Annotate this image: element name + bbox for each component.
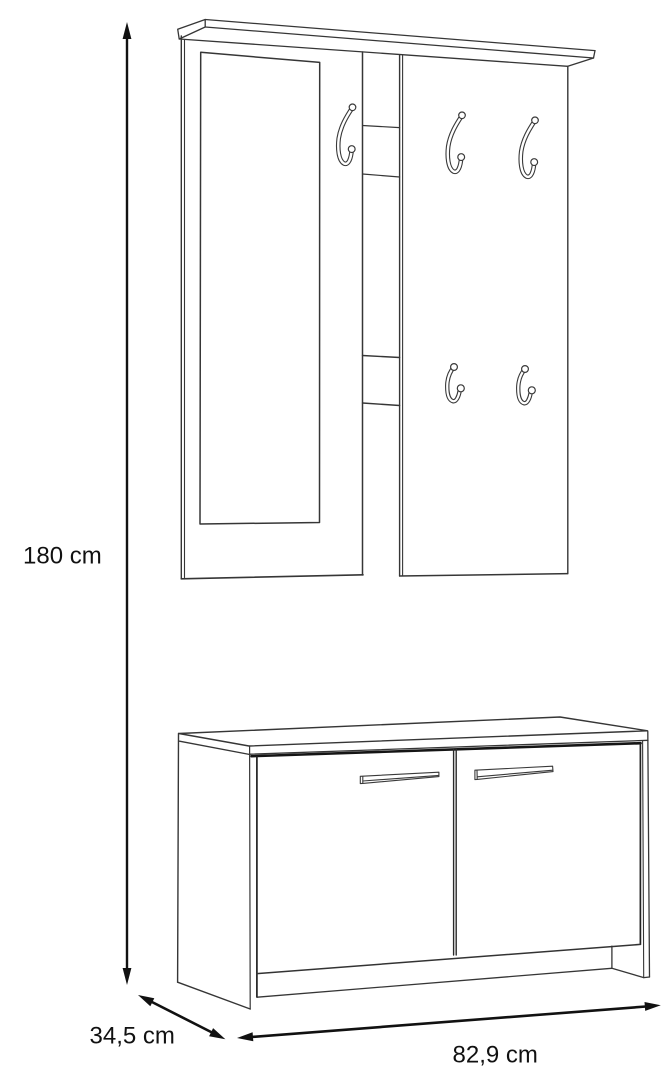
svg-text:180 cm: 180 cm <box>23 543 102 570</box>
svg-text:34,5 cm: 34,5 cm <box>90 1023 175 1050</box>
svg-text:82,9 cm: 82,9 cm <box>453 1042 538 1069</box>
